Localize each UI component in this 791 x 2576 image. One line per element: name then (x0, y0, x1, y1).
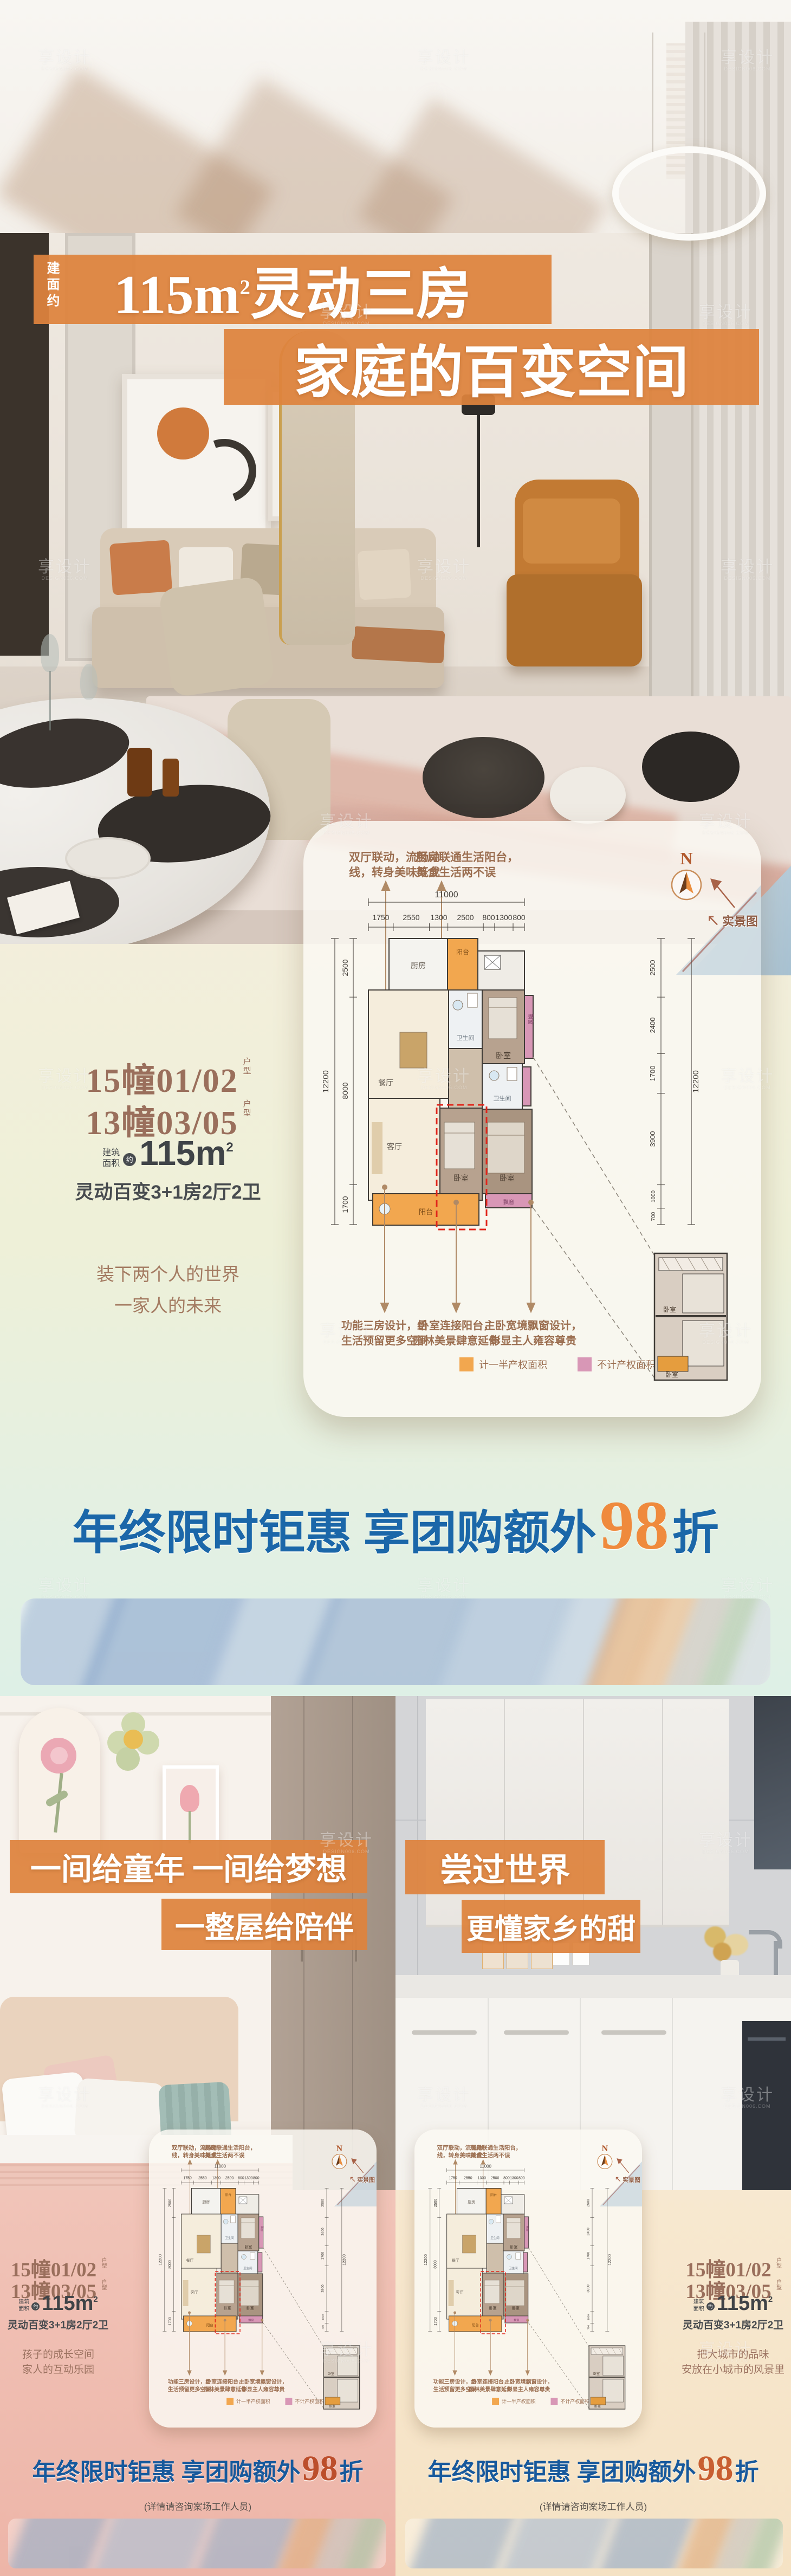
area-label: 建筑 面积 (102, 1148, 120, 1169)
scene-arrow-glyph: ↖ (615, 2176, 621, 2184)
svg-text:美食生活两不误: 美食生活两不误 (205, 2152, 244, 2159)
dims-right (591, 2189, 610, 2332)
svg-text:12200: 12200 (691, 1070, 701, 1093)
svg-text:主卧宽境飘窗设计，: 主卧宽境飘窗设计， (504, 2378, 553, 2385)
svg-text:餐厅: 餐厅 (452, 2258, 459, 2263)
svg-text:1700: 1700 (434, 2317, 438, 2326)
slogan-line-2: 安放在小城市的风景里 (669, 2361, 791, 2376)
svg-text:客厅: 客厅 (191, 2290, 198, 2295)
dims-right (325, 2189, 344, 2332)
right-title-line2: 更懂家乡的甜 (466, 1906, 636, 1947)
svg-text:3900: 3900 (587, 2284, 591, 2293)
area-sup: 2 (93, 2295, 98, 2304)
poster-right: 尝过世界 更懂家乡的甜 双厅联动，流畅动 线，转身美味既成 厨房联通生活阳台， … (395, 1696, 791, 2576)
plate (65, 837, 151, 879)
svg-text:园林美景肆意延伸: 园林美景肆意延伸 (469, 2386, 512, 2393)
svg-text:餐厅: 餐厅 (378, 1078, 393, 1087)
room-balcony-top (486, 2189, 501, 2215)
svg-text:阳台: 阳台 (472, 2322, 479, 2327)
petal (116, 1747, 140, 1771)
plan-legend: 计一半产权面积 不计产权面积 (226, 2398, 324, 2405)
svg-text:卧室连接阳台，: 卧室连接阳台， (206, 2378, 244, 2385)
right-title-banner-1: 尝过世界 (405, 1840, 605, 1894)
flower-blob (713, 1943, 731, 1961)
promo-line-main: 年终限时钜惠 享团购额外98折 (43, 1486, 748, 1567)
bay-window-2 (523, 2253, 528, 2272)
svg-text:2500: 2500 (649, 960, 657, 976)
coffee-table-dark (423, 737, 544, 818)
svg-text:客厅: 客厅 (387, 1142, 402, 1151)
svg-text:N: N (602, 2144, 608, 2153)
window-frame (649, 233, 693, 769)
svg-text:8000: 8000 (168, 2260, 172, 2269)
amber-bottle (127, 748, 152, 797)
left-title-banner-2: 一整屋给陪伴 (161, 1899, 367, 1950)
right-title-line1: 尝过世界 (440, 1844, 570, 1891)
svg-text:卧室: 卧室 (510, 2244, 517, 2249)
svg-text:卧室: 卧室 (247, 2306, 254, 2310)
svg-text:功能三房设计，给: 功能三房设计，给 (168, 2378, 211, 2385)
area-sup: 2 (768, 2295, 773, 2304)
print-stem (189, 1811, 191, 1843)
title-area-sup: 2 (239, 276, 250, 299)
svg-text:2550: 2550 (464, 2176, 472, 2180)
svg-text:卧室: 卧室 (453, 1174, 469, 1182)
unit-suffix: 户型 (242, 1099, 250, 1118)
scene-arrow-glyph: ↖ (706, 912, 720, 929)
area-value: 115m (42, 2294, 93, 2313)
arch-artwork (19, 1708, 100, 1853)
promo-number: 98 (698, 2448, 734, 2489)
svg-text:1700: 1700 (168, 2317, 172, 2326)
svg-text:12200: 12200 (341, 2254, 346, 2266)
dims-right-labels: 2500 2400 1700 3900 1000 700 12200 (649, 960, 701, 1221)
svg-text:不计产权面积: 不计产权面积 (295, 2398, 324, 2404)
plan-card-mount-main: 双厅联动，流畅动 线，转身美味既成 厨房联通生活阳台， 美食生活两不误 N (303, 821, 761, 1417)
scene-arrow-icon (711, 879, 735, 908)
compass-icon: N (332, 2144, 347, 2169)
floorplan-drawing: 双厅联动，流畅动 线，转身美味既成 厨房联通生活阳台， 美食生活两不误 N (149, 2130, 377, 2428)
promo-suffix: 折 (672, 1494, 719, 1562)
svg-text:8000: 8000 (341, 1082, 349, 1099)
svg-text:800: 800 (253, 2176, 260, 2180)
svg-text:阳台: 阳台 (225, 2193, 231, 2197)
svg-text:1750: 1750 (372, 913, 389, 922)
svg-text:1700: 1700 (649, 1066, 657, 1082)
scene-photo-label: 实景图 (623, 2175, 640, 2184)
promo-line-right: 年终限时钜惠 享团购额外98折 (395, 2448, 791, 2491)
area-label-2: 面积 (18, 2306, 29, 2313)
svg-text:厨房: 厨房 (468, 2199, 475, 2204)
armchair-seat (507, 574, 642, 666)
svg-text:卧室: 卧室 (244, 2244, 252, 2249)
svg-text:卫生间: 卫生间 (494, 1095, 511, 1102)
plan-annotation-top-2: 厨房联通生活阳台， 美食生活两不误 (470, 2144, 521, 2159)
poster-left: 一间给童年 一间给梦想 一整屋给陪伴 双厅联动，流畅动 线，转身美味既成 厨房联… (0, 1696, 395, 2576)
promo-number: 98 (600, 1486, 669, 1565)
svg-text:彰显主人雍容尊贵: 彰显主人雍容尊贵 (507, 2386, 550, 2393)
svg-text:计一半产权面积: 计一半产权面积 (479, 1360, 547, 1370)
dining-chair-2 (158, 576, 275, 697)
room-balcony-top (448, 939, 478, 990)
svg-text:飘窗: 飘窗 (503, 1199, 514, 1206)
right-title-banner-2: 更懂家乡的甜 (462, 1900, 640, 1953)
svg-text:N: N (680, 849, 692, 868)
svg-text:11000: 11000 (479, 2164, 491, 2169)
plan-annotation-top-2: 厨房联通生活阳台， 美食生活两不误 (416, 851, 518, 879)
drawer-handle (504, 2030, 569, 2035)
dims-left (428, 2189, 441, 2332)
svg-text:12200: 12200 (321, 1070, 330, 1093)
svg-text:餐厅: 餐厅 (186, 2258, 194, 2263)
svg-text:彰显主人雍容尊贵: 彰显主人雍容尊贵 (242, 2386, 285, 2393)
svg-text:2500: 2500 (491, 2176, 500, 2180)
svg-text:主卧宽境飘窗设计，: 主卧宽境飘窗设计， (484, 1319, 582, 1332)
svg-text:卫生间: 卫生间 (509, 2266, 517, 2270)
svg-text:卫生间: 卫生间 (490, 2236, 499, 2240)
wine-glass (41, 634, 59, 672)
svg-text:8000: 8000 (434, 2260, 438, 2269)
svg-text:美食生活两不误: 美食生活两不误 (470, 2152, 510, 2159)
area-sup: 2 (226, 1140, 233, 1155)
wine-glass (80, 664, 98, 700)
svg-text:1000: 1000 (651, 1190, 657, 1202)
room-hallway (221, 2243, 238, 2273)
countertop (395, 1975, 791, 2001)
svg-text:2500: 2500 (434, 2199, 438, 2208)
floorplan-drawing: 双厅联动，流畅动 线，转身美味既成 厨房联通生活阳台， 美食生活两不误 N (303, 821, 761, 1417)
blurred-redacted-strip (21, 1598, 770, 1685)
svg-text:阳台: 阳台 (419, 1208, 433, 1216)
area-row-mini: 建筑 面积 约 115m 2 (679, 2294, 787, 2313)
svg-text:1300: 1300 (430, 913, 447, 922)
svg-text:800: 800 (482, 913, 495, 922)
dims-left (163, 2189, 176, 2332)
svg-text:1700: 1700 (587, 2251, 591, 2260)
scene-photo-callout: ↖ 实景图 (706, 912, 758, 929)
svg-text:1700: 1700 (341, 1196, 349, 1213)
main-title-line1: 115m2灵动三房 (114, 250, 471, 329)
main-title-banner-2: 家庭的百变空间 (224, 329, 759, 405)
svg-text:卧室: 卧室 (224, 2306, 231, 2310)
pouf-black (642, 732, 740, 802)
curtain (685, 22, 791, 807)
title-rest: 灵动三房 (250, 264, 471, 326)
svg-text:卧室: 卧室 (594, 2404, 601, 2409)
svg-text:厨房: 厨房 (202, 2199, 210, 2204)
svg-text:1750: 1750 (183, 2176, 192, 2180)
pendant-cord (652, 33, 653, 157)
area-label-2: 面积 (102, 1158, 120, 1169)
area-label-1: 建筑 (693, 2299, 704, 2306)
drawer-handle (412, 2030, 477, 2035)
svg-text:1000: 1000 (322, 2314, 325, 2320)
cabinet-seam (662, 1699, 663, 1925)
slogan-line-1: 孩子的成长空间 (5, 2346, 111, 2361)
svg-text:卫生间: 卫生间 (225, 2236, 234, 2240)
promo-prefix: 年终限时钜惠 享团购额外 (33, 2452, 301, 2487)
room-balcony-top (221, 2189, 236, 2215)
promo-number: 98 (302, 2448, 338, 2489)
dims-right-labels: 2500 2400 1700 3900 1000 700 12200 (321, 2199, 347, 2329)
svg-text:阳台: 阳台 (456, 948, 469, 956)
disclaimer-note: (详情请咨询案场工作人员) (395, 2499, 791, 2513)
room-hallway (487, 2243, 503, 2273)
room-hallway (449, 1048, 482, 1108)
area-label-1: 建筑 (18, 2299, 29, 2306)
tulip-highlight (50, 1747, 68, 1764)
svg-text:1300: 1300 (244, 2176, 253, 2180)
svg-text:飘窗: 飘窗 (527, 1014, 534, 1025)
svg-text:卧室连接阳台，: 卧室连接阳台， (471, 2378, 509, 2385)
slogan-line-2: 家人的互动乐园 (5, 2361, 111, 2376)
svg-text:12200: 12200 (423, 2254, 428, 2266)
svg-text:1000: 1000 (587, 2314, 591, 2320)
floorplan-card: 双厅联动，流畅动 线，转身美味既成 厨房联通生活阳台， 美食生活两不误 N (303, 821, 761, 1417)
unit-suffix: 户型 (100, 2257, 106, 2268)
blurred-redacted-strip (405, 2519, 783, 2568)
unit-line-1: 15幢01/02 户型 (33, 1053, 303, 1102)
svg-text:1300: 1300 (212, 2176, 221, 2180)
svg-text:美食生活两不误: 美食生活两不误 (416, 866, 496, 879)
svg-text:3900: 3900 (649, 1131, 657, 1147)
svg-text:卧室: 卧室 (512, 2306, 520, 2310)
dims-right-labels: 2500 2400 1700 3900 1000 700 12200 (587, 2199, 612, 2329)
bay-window-2 (258, 2253, 262, 2272)
svg-text:1300: 1300 (510, 2176, 518, 2180)
svg-text:2550: 2550 (403, 913, 419, 922)
unit-suffix: 户型 (100, 2279, 106, 2290)
svg-text:计一半产权面积: 计一半产权面积 (502, 2398, 536, 2404)
unit-suffix: 户型 (242, 1057, 250, 1076)
svg-text:阳台: 阳台 (490, 2193, 497, 2197)
area-approx-circle: 约 (31, 2302, 40, 2310)
svg-text:卧室连接阳台，: 卧室连接阳台， (418, 1319, 494, 1332)
layout-description: 灵动百变3+1房2厅2卫 (33, 1177, 303, 1205)
left-title-line1: 一间给童年 一间给梦想 (30, 1844, 347, 1889)
dims-right (657, 939, 695, 1225)
svg-text:计一半产权面积: 计一半产权面积 (236, 2398, 270, 2404)
svg-text:2500: 2500 (587, 2199, 591, 2207)
plan-legend: 计一半产权面积 不计产权面积 (459, 1357, 656, 1371)
poster-page: 建面约 115m2灵动三房 家庭的百变空间 双厅联动，流畅动 线，转身美味既成 … (0, 0, 791, 2576)
wine-glass-stem (49, 671, 51, 730)
sofa-throw (352, 626, 445, 664)
svg-text:彰显主人雍容尊贵: 彰显主人雍容尊贵 (490, 1334, 576, 1347)
unit-suffix: 户型 (775, 2257, 781, 2268)
area-label: 建筑 面积 (18, 2299, 29, 2313)
area-value: 115m (717, 2294, 768, 2313)
pillow-cream (358, 549, 412, 600)
slogan-line-2: 一家人的未来 (33, 1291, 303, 1317)
left-title-banner-1: 一间给童年 一间给梦想 (10, 1840, 367, 1893)
print-tulip (180, 1785, 199, 1812)
svg-text:飘窗: 飘窗 (514, 2318, 519, 2322)
title-area-number: 115m (114, 264, 239, 326)
svg-text:700: 700 (322, 2325, 325, 2330)
svg-text:阳台: 阳台 (206, 2322, 213, 2327)
dims-left-labels: 12200 2500 8000 1700 (158, 2199, 172, 2326)
flower-center (124, 1730, 143, 1749)
layout-description-mini: 灵动百变3+1房2厅2卫 (675, 2317, 791, 2332)
svg-text:卫生间: 卫生间 (457, 1034, 475, 1041)
promo-line-left: 年终限时钜惠 享团购额外98折 (0, 2448, 395, 2491)
cabinet-seam (672, 1998, 673, 2190)
svg-text:800: 800 (238, 2176, 244, 2180)
svg-text:不计产权面积: 不计产权面积 (560, 2398, 589, 2404)
svg-text:卫生间: 卫生间 (243, 2266, 252, 2270)
scene-photo-label: 实景图 (722, 912, 758, 929)
svg-text:12200: 12200 (607, 2254, 612, 2266)
svg-text:功能三房设计，给: 功能三房设计，给 (341, 1319, 428, 1332)
svg-text:11000: 11000 (214, 2164, 226, 2169)
svg-text:2500: 2500 (321, 2199, 325, 2207)
svg-text:2400: 2400 (649, 1018, 657, 1033)
area-row-mini: 建筑 面积 约 115m 2 (5, 2294, 111, 2313)
svg-text:飘窗: 飘窗 (260, 2226, 264, 2231)
plan-annotation-bottom-1: 功能三房设计，给 生活预留更多空间 卧室连接阳台， 园林美景肆意延伸 主卧宽境飘… (433, 2378, 553, 2393)
slogan-line-1: 把大城市的品味 (669, 2346, 791, 2361)
svg-text:800: 800 (503, 2176, 510, 2180)
scene-photo-callout: ↖ 实景图 (349, 2175, 375, 2184)
promo-prefix: 年终限时钜惠 享团购额外 (428, 2452, 696, 2487)
svg-text:不计产权面积: 不计产权面积 (597, 1360, 656, 1370)
plan-card-mount-left: 双厅联动，流畅动 线，转身美味既成 厨房联通生活阳台， 美食生活两不误 N (149, 2130, 377, 2428)
promo-prefix: 年终限时钜惠 享团购额外 (72, 1494, 597, 1562)
bay-window-2 (522, 1067, 531, 1106)
slogan-line-1: 装下两个人的世界 (33, 1260, 303, 1286)
svg-text:3900: 3900 (321, 2284, 325, 2293)
svg-text:卧室: 卧室 (665, 1370, 678, 1378)
plan-annotation-bottom-1: 功能三房设计，给 生活预留更多空间 卧室连接阳台， 园林美景肆意延伸 主卧宽境飘… (168, 2378, 288, 2393)
dims-top-labels: 11000 1750 2550 1300 2500 800 1300 800 (372, 890, 525, 922)
compass-icon: N (672, 849, 701, 899)
coffee-table-white (550, 767, 626, 824)
drawer-handle (601, 2030, 666, 2035)
area-label-1: 建筑 (102, 1148, 120, 1158)
svg-text:卧室: 卧室 (593, 2372, 600, 2376)
bay-window-top (259, 2217, 263, 2248)
svg-text:1300: 1300 (478, 2176, 487, 2180)
floor-lamp-pole (477, 412, 480, 547)
svg-text:卧室: 卧室 (500, 1174, 515, 1182)
scene-arrow-icon (352, 2159, 363, 2173)
svg-text:700: 700 (587, 2325, 591, 2330)
amber-bottle-small (163, 759, 179, 797)
svg-text:厨房联通生活阳台，: 厨房联通生活阳台， (205, 2144, 256, 2151)
dims-top-labels: 11000 1750 2550 1300 2500 800 1300 800 (449, 2164, 524, 2180)
pendant-ring-light (612, 146, 766, 241)
svg-text:厨房联通生活阳台，: 厨房联通生活阳台， (470, 2144, 521, 2151)
svg-text:飘窗: 飘窗 (526, 2226, 529, 2231)
svg-text:2550: 2550 (198, 2176, 207, 2180)
floorplan-card: 双厅联动，流畅动 线，转身美味既成 厨房联通生活阳台， 美食生活两不误 N (149, 2130, 377, 2428)
unit-suffix: 户型 (775, 2279, 781, 2290)
dims-left (331, 939, 357, 1225)
svg-text:卧室: 卧室 (328, 2372, 334, 2376)
bay-window-top (524, 2217, 529, 2248)
svg-text:1750: 1750 (449, 2176, 457, 2180)
svg-text:功能三房设计，给: 功能三房设计，给 (433, 2378, 477, 2385)
plan-legend: 计一半产权面积 不计产权面积 (492, 2398, 589, 2405)
scene-photo-label: 实景图 (357, 2175, 375, 2184)
area-label-2: 面积 (693, 2306, 704, 2313)
svg-text:卧室: 卧室 (663, 1305, 676, 1313)
unit-line-1-text: 15幢01/02 (86, 1053, 238, 1102)
svg-text:700: 700 (651, 1212, 657, 1221)
dark-window (754, 1696, 791, 1869)
svg-text:1700: 1700 (321, 2251, 325, 2260)
area-label: 建筑 面积 (693, 2299, 704, 2313)
bay-window-top (524, 995, 533, 1058)
scene-photo-callout: ↖ 实景图 (615, 2175, 640, 2184)
promo-suffix: 折 (735, 2452, 759, 2487)
pillow-orange (109, 540, 172, 595)
plan-annotation-bottom-1: 功能三房设计，给 生活预留更多空间 卧室连接阳台， 园林美景肆意延伸 主卧宽境飘… (341, 1319, 582, 1347)
svg-text:2500: 2500 (341, 959, 349, 976)
poster-main: 建面约 115m2灵动三房 家庭的百变空间 双厅联动，流畅动 线，转身美味既成 … (0, 0, 791, 1696)
blurred-redacted-strip (8, 2519, 386, 2568)
compass-icon: N (598, 2144, 612, 2169)
svg-text:园林美景肆意延伸: 园林美景肆意延伸 (413, 1334, 500, 1347)
armchair-cushion (523, 499, 620, 564)
dark-appliance (742, 2021, 791, 2190)
area-approx-circle: 约 (706, 2302, 715, 2310)
svg-text:飘窗: 飘窗 (248, 2318, 254, 2322)
svg-text:2400: 2400 (587, 2228, 591, 2236)
svg-text:800: 800 (518, 2176, 525, 2180)
scene-arrow-glyph: ↖ (349, 2176, 356, 2184)
layout-description-mini: 灵动百变3+1房2厅2卫 (1, 2317, 115, 2332)
floorplan-card: 双厅联动，流畅动 线，转身美味既成 厨房联通生活阳台， 美食生活两不误 N (414, 2130, 642, 2428)
dims-top-labels: 11000 1750 2550 1300 2500 800 1300 800 (183, 2164, 259, 2180)
floorplan-drawing: 双厅联动，流畅动 线，转身美味既成 厨房联通生活阳台， 美食生活两不误 N (414, 2130, 642, 2428)
svg-text:800: 800 (513, 913, 526, 922)
svg-text:12200: 12200 (158, 2254, 163, 2266)
svg-text:2500: 2500 (168, 2199, 172, 2208)
svg-text:卧室: 卧室 (329, 2404, 335, 2409)
svg-text:厨房联通生活阳台，: 厨房联通生活阳台， (416, 851, 518, 864)
left-title-line2: 一整屋给陪伴 (175, 1903, 354, 1946)
svg-text:1300: 1300 (495, 913, 512, 922)
svg-text:厨房: 厨房 (411, 961, 426, 970)
disclaimer-note: (详情请咨询案场工作人员) (0, 2499, 395, 2513)
svg-text:2500: 2500 (225, 2176, 234, 2180)
scene-arrow-icon (617, 2159, 628, 2173)
svg-text:客厅: 客厅 (456, 2290, 464, 2295)
svg-text:2400: 2400 (321, 2228, 325, 2236)
svg-text:2500: 2500 (457, 913, 474, 922)
area-approx-circle: 约 (123, 1153, 136, 1166)
promo-suffix: 折 (340, 2452, 364, 2487)
appliance-handle (748, 2037, 786, 2041)
svg-text:N: N (336, 2144, 343, 2153)
flower-decor (107, 1712, 159, 1775)
area-row: 建筑 面积 约 115m 2 (33, 1138, 303, 1169)
living-room-photo (0, 0, 791, 944)
pendant-cord (704, 33, 705, 152)
faucet-stem (774, 1941, 778, 1976)
svg-text:卧室: 卧室 (496, 1051, 511, 1060)
area-value: 115m (139, 1138, 226, 1169)
plan-card-mount-right: 双厅联动，流畅动 线，转身美味既成 厨房联通生活阳台， 美食生活两不误 N (414, 2130, 642, 2428)
main-title-banner-1: 建面约 115m2灵动三房 (34, 255, 552, 324)
svg-text:11000: 11000 (435, 890, 458, 899)
plan-annotation-top-2: 厨房联通生活阳台， 美食生活两不误 (205, 2144, 256, 2159)
svg-text:园林美景肆意延伸: 园林美景肆意延伸 (203, 2386, 247, 2393)
dims-left-labels: 12200 2500 8000 1700 (321, 959, 349, 1213)
dims-left-labels: 12200 2500 8000 1700 (423, 2199, 438, 2326)
